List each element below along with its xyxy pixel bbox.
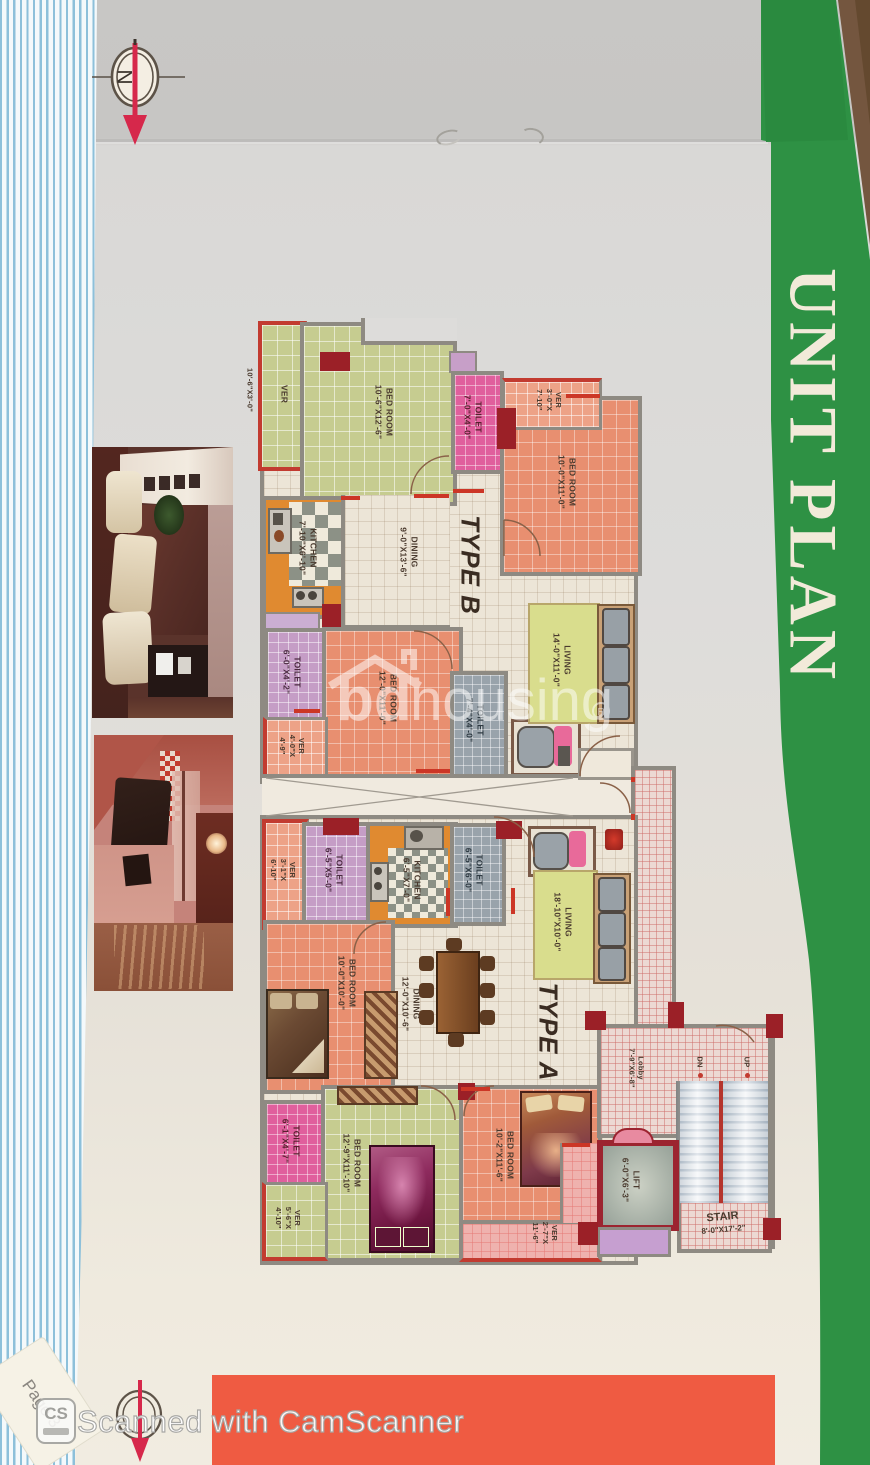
svg-text:R: R: [597, 707, 604, 718]
svg-text:bd: bd: [336, 665, 412, 734]
svg-text:housing: housing: [410, 668, 613, 733]
